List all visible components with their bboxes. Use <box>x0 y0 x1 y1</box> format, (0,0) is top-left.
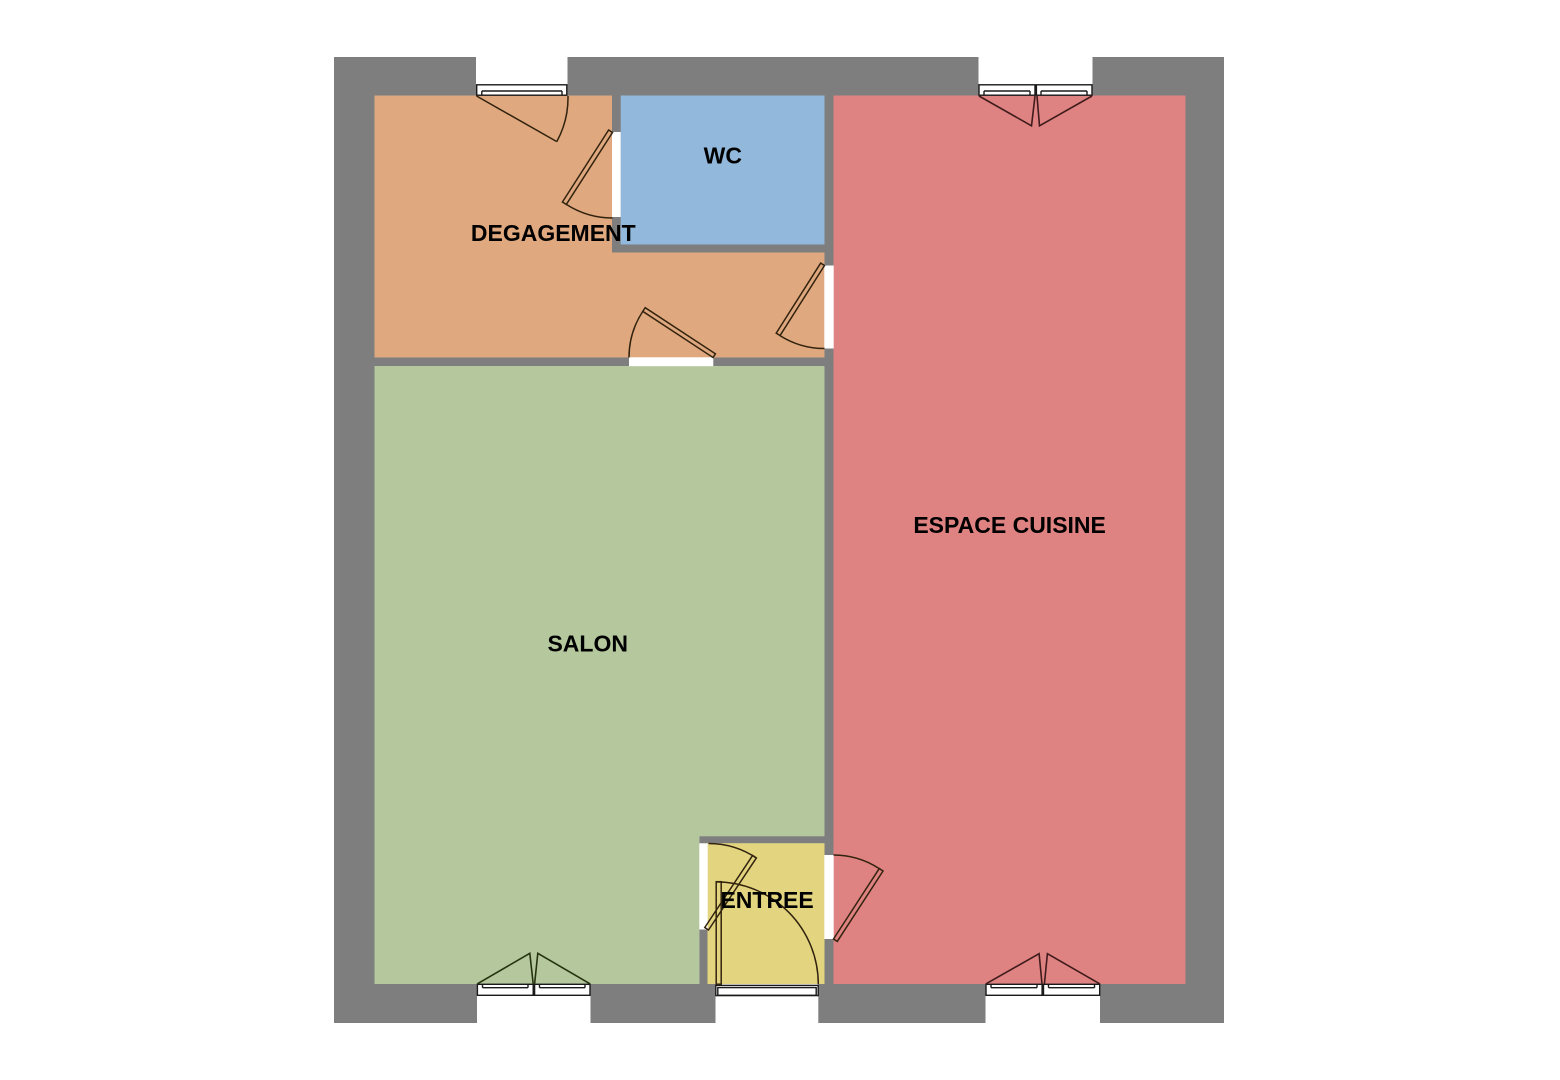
svg-text:ENTREE: ENTREE <box>720 887 813 913</box>
svg-text:SALON: SALON <box>547 630 628 656</box>
svg-text:DEGAGEMENT: DEGAGEMENT <box>471 220 636 246</box>
svg-text:WC: WC <box>704 143 742 169</box>
svg-text:ESPACE CUISINE: ESPACE CUISINE <box>913 512 1106 538</box>
